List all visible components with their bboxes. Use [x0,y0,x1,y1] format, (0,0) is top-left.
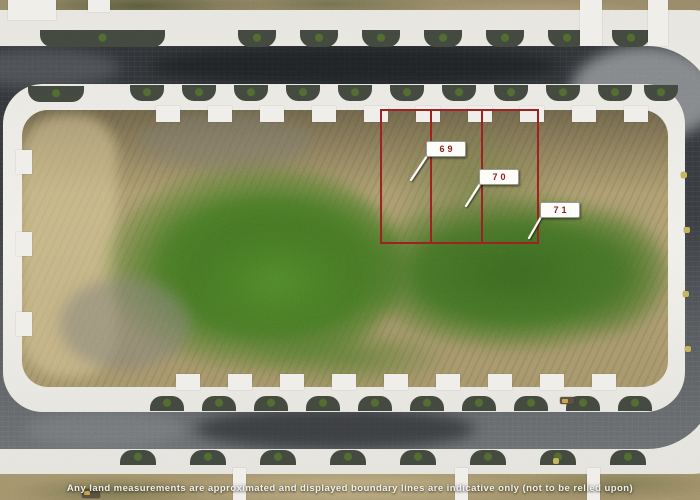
lot-label-69: 69 [426,141,466,157]
verge-garden-bed [260,450,296,465]
driveway-apron [384,374,408,390]
verge-garden-bed [190,450,226,465]
street-marker [553,458,559,464]
driveway-apron [624,106,648,122]
verge-garden-bed [120,450,156,465]
verge-garden-bed [182,85,216,101]
driveway-apron [468,106,492,122]
driveway-apron [16,150,32,174]
verge-garden-bed [130,85,164,101]
verge-garden-bed [442,85,476,101]
street-marker [681,172,687,178]
footpath-connection [648,0,668,46]
driveway-apron [572,106,596,122]
verge-garden-bed [462,396,496,411]
verge-garden-bed [494,85,528,101]
lot-label-71: 71 [540,202,580,218]
driveway-apron [228,374,252,390]
verge-garden-bed [28,86,84,102]
verge-garden-bed [362,30,400,47]
driveway-apron [332,374,356,390]
driveway-apron [16,232,32,256]
verge-garden-bed [644,85,678,101]
verge-garden-bed [618,396,652,411]
verge-garden-bed [338,85,372,101]
street-marker [685,346,691,352]
driveway-apron [156,106,180,122]
verge-garden-bed [470,450,506,465]
verge-garden-bed [410,396,444,411]
verge-garden-bed [306,396,340,411]
footpath-connection [88,0,110,12]
verge-garden-bed [330,450,366,465]
driveway-apron [16,312,32,336]
verge-garden-bed [202,396,236,411]
verge-garden-bed [300,30,338,47]
verge-garden-bed [612,30,650,47]
verge-garden-bed [514,396,548,411]
driveway-apron [176,374,200,390]
lot-label-70: 70 [479,169,519,185]
verge-garden-bed [238,30,276,47]
driveway-apron [280,374,304,390]
driveway-apron [208,106,232,122]
lot-number: 71 [550,205,569,215]
verge-garden-bed [424,30,462,47]
verge-garden-bed [358,396,392,411]
driveway-apron [540,374,564,390]
lot-number: 69 [436,144,455,154]
driveway-apron [416,106,440,122]
verge-garden-bed [234,85,268,101]
verge-garden-bed [486,30,524,47]
street-marker [683,291,689,297]
lot-number: 70 [489,172,508,182]
construction-vehicle [560,397,574,404]
verge-garden-bed [286,85,320,101]
driveway-apron [260,106,284,122]
driveway-apron [364,106,388,122]
driveway-apron [8,0,56,20]
street-marker [684,227,690,233]
driveway-apron [488,374,512,390]
verge-garden-bed [598,85,632,101]
verge-garden-bed [254,396,288,411]
verge-garden-bed [390,85,424,101]
driveway-apron [520,106,544,122]
street-furniture-layer [0,0,700,500]
driveway-apron [312,106,336,122]
verge-garden-bed [400,450,436,465]
driveway-apron [436,374,460,390]
footpath-connection [580,0,602,46]
verge-garden-bed [40,30,165,47]
verge-garden-bed [610,450,646,465]
aerial-photo-scene: 69 70 71 Any land measurements are appro… [0,0,700,500]
verge-garden-bed [150,396,184,411]
measurement-disclaimer: Any land measurements are approximated a… [0,483,700,494]
verge-garden-bed [546,85,580,101]
driveway-apron [592,374,616,390]
